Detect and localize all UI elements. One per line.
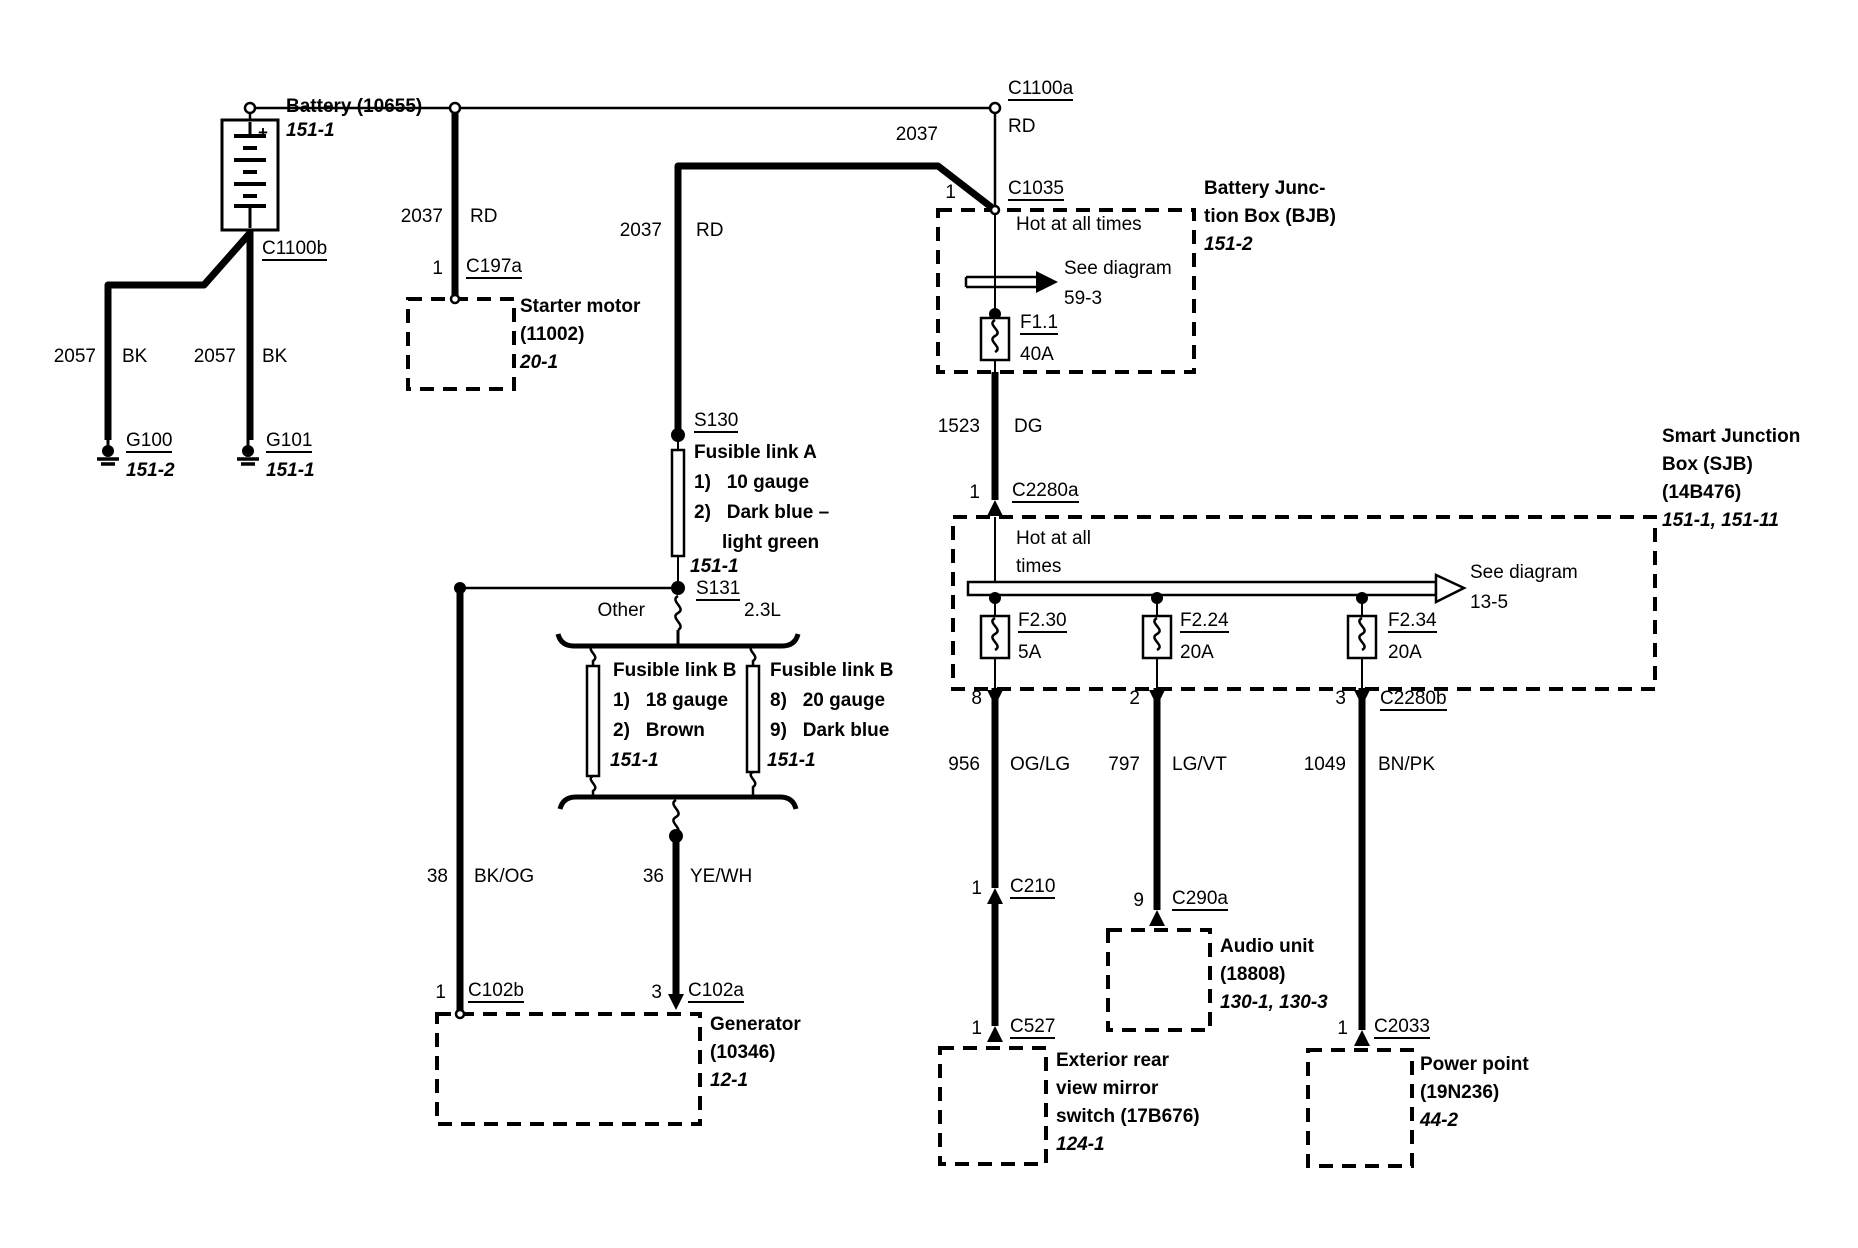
bjb-see-diagram-label: See diagram	[1064, 258, 1172, 279]
sjb-bus-bar	[968, 575, 1464, 602]
generator-part: (10346)	[710, 1042, 776, 1063]
fusible-link-b-left-title: Fusible link B	[613, 660, 737, 681]
wire-generator-right	[668, 829, 684, 1010]
sjb-see-diagram-label: See diagram	[1470, 562, 1578, 583]
fusible-link-a-item2b: light green	[722, 532, 819, 553]
fuse-f2-34-label: F2.34	[1388, 610, 1437, 631]
wire-main-feed	[678, 166, 995, 430]
starter-ref: 20-1	[520, 352, 558, 373]
pin-c102b: 1	[406, 982, 446, 1003]
ground-g101-icon	[237, 438, 259, 464]
connector-c102a-label: C102a	[688, 980, 744, 1001]
bjb-see-diagram-ref: 59-3	[1064, 288, 1102, 309]
starter-box	[408, 299, 514, 389]
splice-s131	[671, 581, 685, 595]
connector-c2280a-label: C2280a	[1012, 480, 1079, 501]
split-23l-label: 2.3L	[744, 600, 781, 621]
sjb-fuse-f2-30-symbol	[981, 592, 1009, 688]
sjb-ref: 151-1, 151-11	[1662, 510, 1779, 531]
pin-c102a: 3	[622, 982, 662, 1003]
connector-c2033-label: C2033	[1374, 1016, 1430, 1037]
starter-part: (11002)	[520, 324, 584, 345]
fusible-link-a-ref: 151-1	[690, 556, 739, 577]
connector-arrow-c527	[987, 1026, 1003, 1042]
sjb-name-line3: (14B476)	[1662, 482, 1741, 503]
sjb-name-line2: Box (SJB)	[1662, 454, 1753, 475]
pin-c210: 1	[942, 878, 982, 899]
fusible-link-a-title: Fusible link A	[694, 442, 817, 463]
wire-38-number: 38	[392, 866, 448, 887]
audio-name-line1: Audio unit	[1220, 936, 1314, 957]
fusible-link-b-left-symbol	[587, 646, 599, 797]
sjb-name-line1: Smart Junction	[1662, 426, 1800, 447]
connector-arrow-c2280a	[987, 500, 1003, 516]
fusible-link-b-right-ref: 151-1	[767, 750, 816, 771]
fusible-link-a-symbol	[672, 435, 684, 582]
fuse-f2-24-amps: 20A	[1180, 642, 1214, 663]
ground-g100-ref: 151-2	[126, 460, 175, 481]
battery-ref: 151-1	[286, 120, 335, 141]
connector-arrow-c2033	[1354, 1030, 1370, 1046]
wire-2057-left-number: 2057	[40, 346, 96, 367]
mirror-name-line1: Exterior rear	[1056, 1050, 1169, 1071]
connector-c1100a-label: C1100a	[1008, 78, 1073, 99]
power-ref: 44-2	[1420, 1110, 1458, 1131]
fusible-link-a-item1: 1) 10 gauge	[694, 472, 809, 493]
wire-2057-right-color: BK	[262, 346, 287, 367]
fusible-link-b-left-item2: 2) Brown	[613, 720, 705, 741]
wire-2037-feed-color: RD	[696, 220, 723, 241]
wire-c1100a-color: RD	[1008, 116, 1035, 137]
pin-sjb-2: 2	[1100, 688, 1140, 709]
wire-2037-starter-color: RD	[470, 206, 497, 227]
audio-name-line2: (18808)	[1220, 964, 1286, 985]
split-other-label: Other	[575, 600, 645, 621]
ground-g100-label: G100	[126, 430, 172, 451]
bjb-name-line2: tion Box (BJB)	[1204, 206, 1336, 227]
bjb-bus-arrow-icon	[966, 271, 1058, 293]
mirror-name-line3: switch (17B676)	[1056, 1106, 1200, 1127]
wire-36-color: YE/WH	[690, 866, 752, 887]
fusible-link-b-left-item1: 1) 18 gauge	[613, 690, 728, 711]
connector-c290a-label: C290a	[1172, 888, 1228, 909]
connector-c210-label: C210	[1010, 876, 1055, 897]
connector-arrow-c290a	[1149, 910, 1165, 926]
pin-c1035: 1	[916, 182, 956, 203]
pin-sjb-3: 3	[1306, 688, 1346, 709]
sjb-fuse-f2-34-symbol	[1348, 592, 1376, 688]
fuse-f1-1-label: F1.1	[1020, 312, 1058, 333]
sjb-hot-line1: Hot at all	[1016, 528, 1091, 549]
battery-title: Battery (10655)	[286, 96, 422, 117]
pin-c290a: 9	[1104, 890, 1144, 911]
generator-ref: 12-1	[710, 1070, 748, 1091]
fuse-f2-34-amps: 20A	[1388, 642, 1422, 663]
wire-38-color: BK/OG	[474, 866, 534, 887]
fuse-f2-24-label: F2.24	[1180, 610, 1229, 631]
starter-name: Starter motor	[520, 296, 640, 317]
mirror-name-line2: view mirror	[1056, 1078, 1158, 1099]
splice-s131-label: S131	[696, 578, 740, 599]
fusible-link-b-right-title: Fusible link B	[770, 660, 894, 681]
fuse-f2-30-amps: 5A	[1018, 642, 1041, 663]
battery-symbol	[222, 120, 278, 230]
bjb-ref: 151-2	[1204, 234, 1253, 255]
battery-minus-sign: -	[258, 196, 264, 215]
fuse-f1-1-amps: 40A	[1020, 344, 1054, 365]
fusible-link-b-right-item2: 9) Dark blue	[770, 720, 889, 741]
power-name-line2: (19N236)	[1420, 1082, 1499, 1103]
power-name-line1: Power point	[1420, 1054, 1529, 1075]
wire-797-number: 797	[1084, 754, 1140, 775]
wiring-diagram: Battery (10655) 151-1 + - C1100b 2057 BK…	[0, 0, 1858, 1248]
connector-c527-label: C527	[1010, 1016, 1055, 1037]
ground-g101-ref: 151-1	[266, 460, 315, 481]
generator-name: Generator	[710, 1014, 801, 1035]
wire-2037-feed-number: 2037	[602, 220, 662, 241]
connector-c2280b-label: C2280b	[1380, 688, 1447, 709]
wire-1049-color: BN/PK	[1378, 754, 1435, 775]
sjb-hot-line2: times	[1016, 556, 1061, 577]
wire-36-number: 36	[608, 866, 664, 887]
fusible-link-b-left-ref: 151-1	[610, 750, 659, 771]
bjb-hot-label: Hot at all times	[1016, 214, 1142, 235]
wire-2057-right-number: 2057	[180, 346, 236, 367]
connector-c1035-label: C1035	[1008, 178, 1064, 199]
wire-2037-starter-number: 2037	[383, 206, 443, 227]
fuse-f2-30-label: F2.30	[1018, 610, 1067, 631]
wire-battery-ground-left	[108, 233, 250, 440]
wire-1523-color: DG	[1014, 416, 1043, 437]
pin-c2033: 1	[1308, 1018, 1348, 1039]
pin-sjb-8: 8	[942, 688, 982, 709]
wire-956-color: OG/LG	[1010, 754, 1070, 775]
connector-c1100b-label: C1100b	[262, 238, 327, 259]
wire-c1100a-number: 2037	[878, 124, 938, 145]
generator-box	[437, 1014, 700, 1124]
wire-1049-number: 1049	[1290, 754, 1346, 775]
fusible-link-a-item2: 2) Dark blue –	[694, 502, 829, 523]
connector-c197a-label: C197a	[466, 256, 522, 277]
wire-2057-left-color: BK	[122, 346, 147, 367]
ground-g101-label: G101	[266, 430, 312, 451]
fuse-f1-1-symbol	[981, 308, 1009, 360]
pin-c197a: 1	[403, 258, 443, 279]
wire-956-number: 956	[924, 754, 980, 775]
mirror-switch-box	[940, 1048, 1046, 1164]
wire-1523-number: 1523	[920, 416, 980, 437]
wire-797-color: LG/VT	[1172, 754, 1227, 775]
fusible-link-b-right-symbol	[747, 646, 759, 797]
sjb-see-diagram-ref: 13-5	[1470, 592, 1508, 613]
pin-c2280a: 1	[940, 482, 980, 503]
fusible-link-b-right-item1: 8) 20 gauge	[770, 690, 885, 711]
audio-unit-box	[1108, 930, 1210, 1030]
connector-arrow-c210	[987, 888, 1003, 904]
sjb-fuse-f2-24-symbol	[1143, 592, 1171, 688]
bjb-name-line1: Battery Junc-	[1204, 178, 1325, 199]
splice-s130-label: S130	[694, 410, 738, 431]
power-point-box	[1308, 1050, 1412, 1166]
battery-plus-sign: +	[258, 123, 268, 142]
mirror-ref: 124-1	[1056, 1134, 1105, 1155]
connector-c102b-label: C102b	[468, 980, 524, 1001]
ground-g100-icon	[97, 438, 119, 464]
audio-ref: 130-1, 130-3	[1220, 992, 1328, 1013]
pin-c527: 1	[942, 1018, 982, 1039]
merge-bracket-symbol	[560, 797, 796, 834]
